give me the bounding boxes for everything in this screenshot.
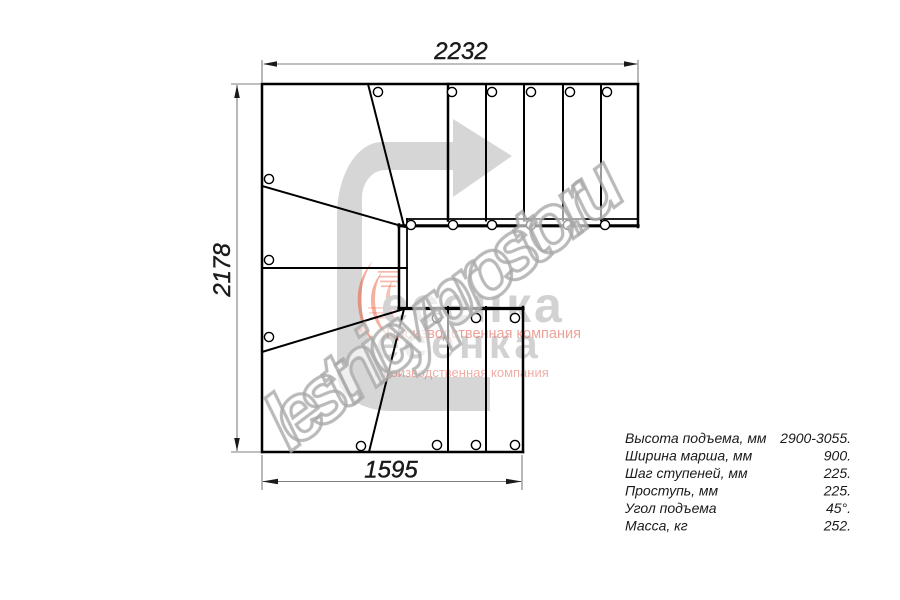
svg-text:Масса, кг: Масса, кг	[625, 518, 688, 534]
svg-text:Высота подъема, мм: Высота подъема, мм	[625, 430, 767, 446]
svg-text:Ширина марша, мм: Ширина марша, мм	[625, 448, 753, 464]
svg-text:2900-3055.: 2900-3055.	[779, 430, 851, 446]
svg-text:225.: 225.	[823, 483, 851, 499]
svg-text:Шаг ступеней, мм: Шаг ступеней, мм	[625, 465, 748, 481]
svg-text:225.: 225.	[823, 465, 851, 481]
svg-text:2232: 2232	[433, 38, 487, 65]
svg-text:2178: 2178	[209, 243, 236, 298]
svg-text:lestnicy-prosto.ru: lestnicy-prosto.ru	[247, 139, 640, 466]
svg-text:900.: 900.	[824, 448, 851, 464]
svg-text:1595: 1595	[364, 457, 418, 484]
svg-text:45°.: 45°.	[826, 500, 851, 516]
svg-text:Угол подъема: Угол подъема	[624, 500, 717, 516]
svg-text:252.: 252.	[823, 518, 851, 534]
svg-text:Проступь, мм: Проступь, мм	[625, 483, 719, 499]
